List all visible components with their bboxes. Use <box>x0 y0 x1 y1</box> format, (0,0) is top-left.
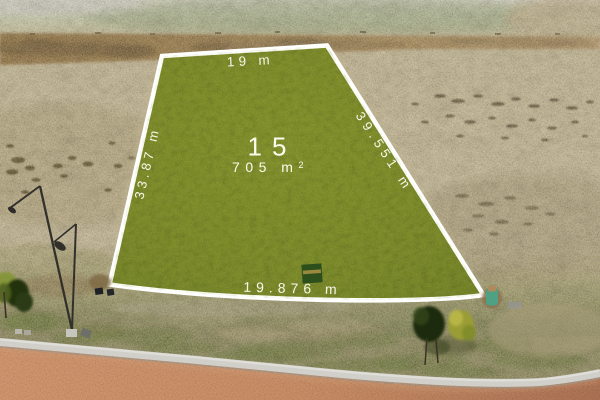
svg-text:19 m: 19 m <box>227 52 275 69</box>
svg-text:705 m2: 705 m2 <box>232 159 309 175</box>
svg-text:19.876 m: 19.876 m <box>243 279 342 298</box>
svg-text:15: 15 <box>248 132 297 162</box>
